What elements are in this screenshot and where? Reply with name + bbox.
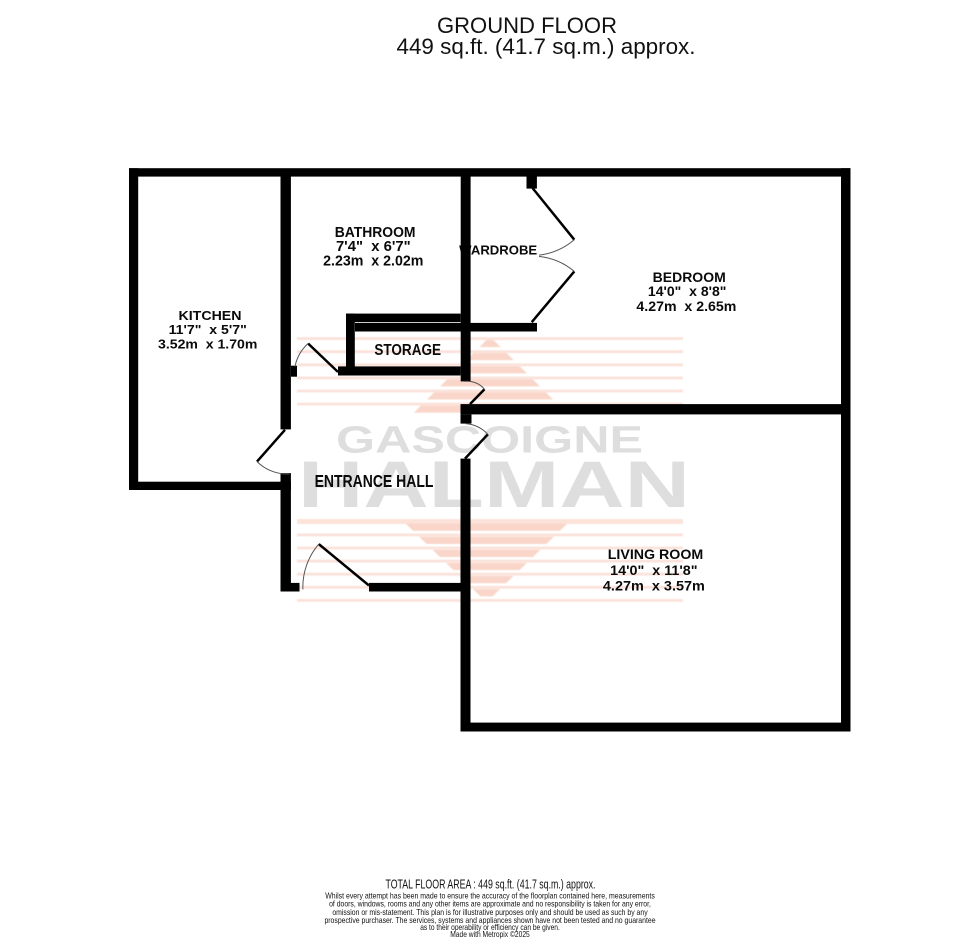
svg-text:3.52m x 1.70m: 3.52m x 1.70m	[158, 338, 257, 352]
svg-text:STORAGE: STORAGE	[374, 342, 441, 359]
svg-text:LIVING ROOM: LIVING ROOM	[608, 547, 704, 563]
svg-text:ENTRANCE HALL: ENTRANCE HALL	[315, 471, 434, 491]
svg-text:14'0" x 11'8": 14'0" x 11'8"	[610, 563, 697, 579]
svg-text:14'0" x 8'8": 14'0" x 8'8"	[648, 284, 727, 299]
svg-text:4.27m x 2.65m: 4.27m x 2.65m	[636, 299, 736, 314]
svg-text:WARDROBE: WARDROBE	[459, 244, 537, 258]
svg-text:11'7" x 5'7": 11'7" x 5'7"	[169, 323, 247, 337]
svg-text:449 sq.ft. (41.7 sq.m.) approx: 449 sq.ft. (41.7 sq.m.) approx.	[397, 34, 696, 59]
svg-text:KITCHEN: KITCHEN	[179, 309, 242, 323]
svg-text:4.27m x 3.57m: 4.27m x 3.57m	[603, 578, 705, 594]
svg-text:2.23m x 2.02m: 2.23m x 2.02m	[323, 253, 423, 270]
svg-text:Made with Metropix ©2025: Made with Metropix ©2025	[450, 929, 530, 939]
